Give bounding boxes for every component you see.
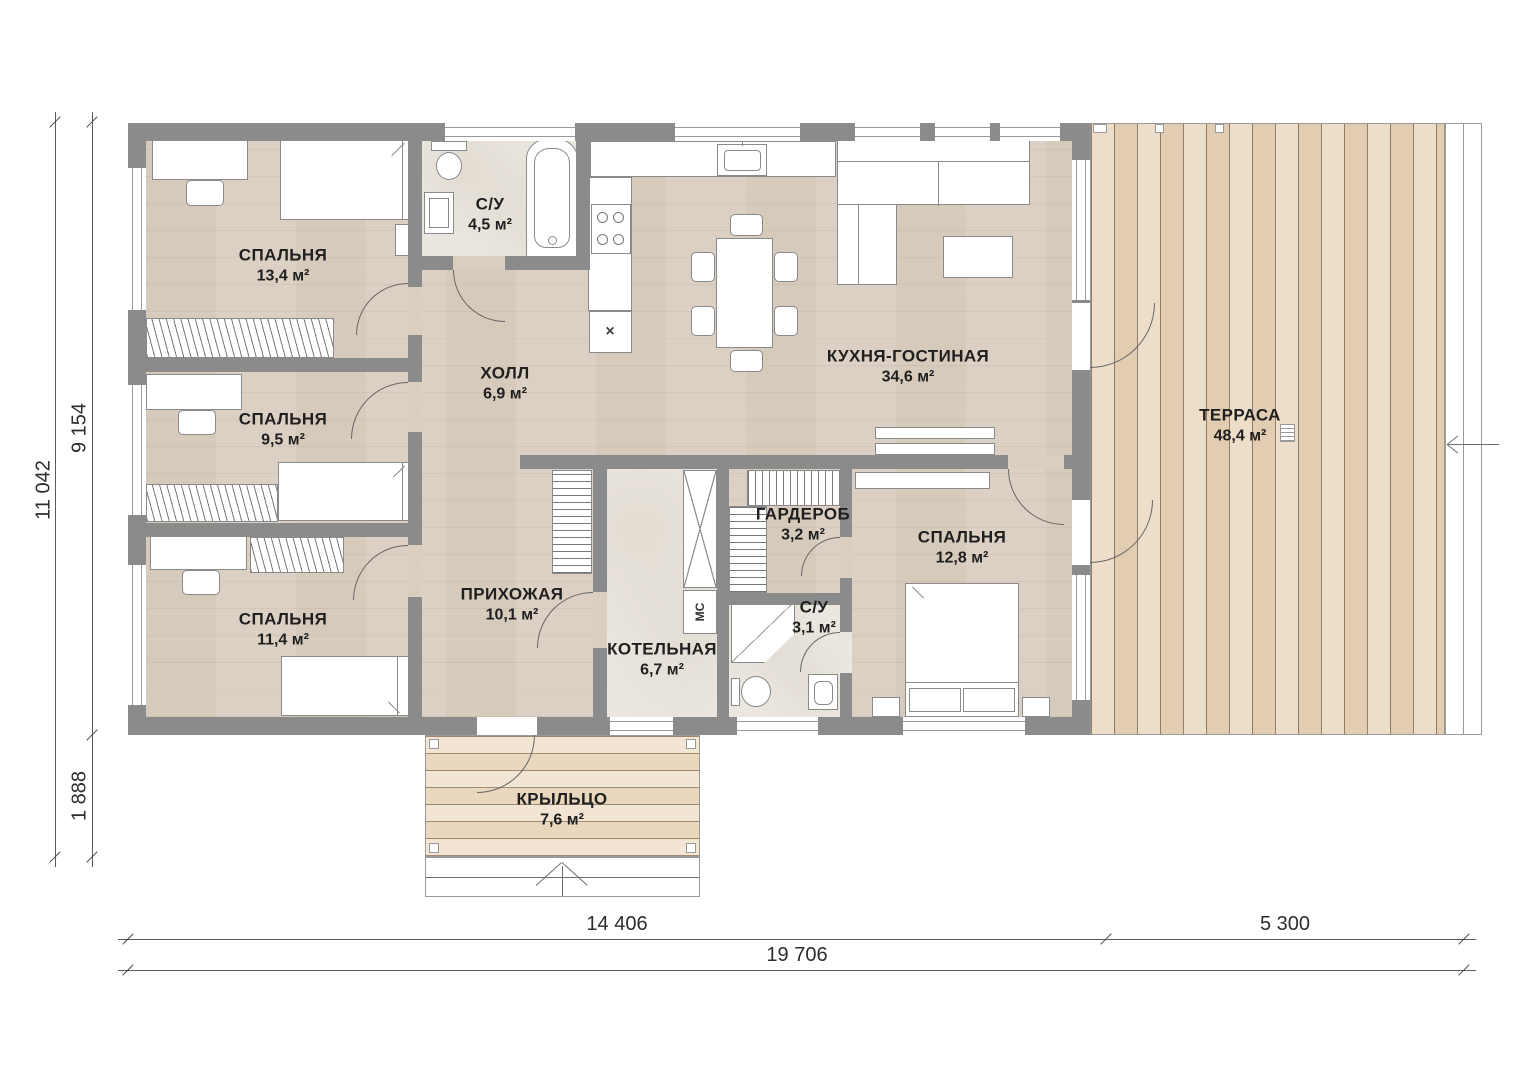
room-name: ПРИХОЖАЯ — [461, 584, 564, 606]
stove-burner — [597, 212, 608, 223]
toilet-bowl — [741, 676, 771, 707]
terrace-entry-arrow-line — [1447, 444, 1499, 445]
room-label-kitchen-living: КУХНЯ-ГОСТИНАЯ 34,6 м² — [827, 346, 989, 389]
tv-stand — [875, 427, 995, 439]
room-label-entry: ПРИХОЖАЯ 10,1 м² — [461, 584, 564, 627]
door-opening-bedroom4 — [1008, 455, 1064, 469]
room-label-bedroom2: СПАЛЬНЯ 9,5 м² — [239, 409, 327, 452]
room-name: ГАРДЕРОБ — [756, 504, 850, 526]
wall-bathroom1-right — [576, 141, 590, 270]
washbasin-inner — [814, 681, 833, 705]
kitchen-sink-basin — [724, 150, 761, 171]
door-opening-bedroom3 — [408, 545, 422, 597]
wardrobe-cabinet — [250, 537, 344, 573]
tv-stand — [875, 443, 995, 455]
room-name: ХОЛЛ — [480, 363, 529, 385]
dining-chair — [730, 350, 763, 372]
appliance-mark: × — [605, 323, 614, 341]
floor-plan: × МС — [0, 0, 1527, 1080]
wall-boiler-wardrobe — [717, 469, 729, 717]
stove-burner — [613, 234, 624, 245]
coffee-table — [943, 236, 1013, 278]
porch-post — [686, 843, 696, 853]
dimension-label-bottom-house: 14 406 — [586, 913, 647, 936]
washbasin — [424, 192, 454, 234]
bathtub-drain — [548, 236, 557, 245]
desk — [150, 532, 247, 570]
bathtub — [526, 139, 578, 265]
wardrobe-cabinet — [146, 318, 334, 358]
porch-arrow-stem — [562, 866, 563, 896]
room-label-terrace: ТЕРРАСА 48,4 м² — [1199, 405, 1281, 448]
room-name: СПАЛЬНЯ — [239, 609, 327, 631]
door-opening-bathroom1 — [453, 256, 505, 270]
dresser — [855, 472, 990, 489]
room-area: 48,4 м² — [1199, 427, 1281, 448]
toilet-bowl — [436, 152, 462, 180]
room-label-bedroom3: СПАЛЬНЯ 11,4 м² — [239, 609, 327, 652]
dining-chair — [691, 252, 715, 282]
bed-fold-line — [388, 701, 400, 713]
boiler-cabinet — [683, 470, 717, 588]
dining-chair — [691, 306, 715, 336]
room-name: СПАЛЬНЯ — [239, 409, 327, 431]
terrace-step-outer — [1445, 123, 1464, 735]
room-label-wardrobe: ГАРДЕРОБ 3,2 м² — [756, 504, 850, 547]
door-opening-bathroom2 — [840, 632, 852, 673]
stove-burner — [613, 212, 624, 223]
window — [128, 565, 146, 705]
sofa-back-line — [858, 205, 859, 284]
wardrobe-rack — [747, 470, 840, 506]
room-area: 3,1 м² — [792, 619, 836, 640]
bed-blanket-line — [906, 682, 1018, 683]
room-area: 11,4 м² — [239, 631, 327, 652]
entry-closet — [552, 470, 592, 574]
room-name: СПАЛЬНЯ — [239, 245, 327, 267]
door-opening-bedroom1 — [408, 287, 422, 335]
kitchen-sink — [717, 144, 767, 176]
wardrobe-cabinet — [146, 484, 278, 522]
terrace-fixing-mark — [1155, 124, 1164, 133]
chair — [186, 180, 224, 206]
room-area: 6,9 м² — [480, 385, 529, 406]
room-area: 3,2 м² — [756, 526, 850, 547]
stove — [591, 204, 631, 254]
dimension-label-left-main: 9 154 — [69, 403, 92, 453]
dimension-label-left-porch: 1 888 — [69, 771, 92, 821]
toilet-tank — [731, 678, 740, 706]
toilet-tank — [431, 141, 467, 151]
stove-burner — [597, 234, 608, 245]
window — [855, 123, 920, 141]
room-area: 7,6 м² — [517, 811, 608, 832]
door-opening-bedroom2 — [408, 382, 422, 432]
door-opening-entry — [477, 717, 537, 735]
chair — [178, 410, 216, 435]
wall-between-bedroom1-bedroom2 — [146, 358, 408, 372]
sofa-chaise-section — [837, 204, 897, 285]
window — [737, 717, 818, 735]
room-name: С/У — [792, 597, 836, 619]
bed-headboard-line — [397, 657, 398, 715]
window — [128, 168, 146, 310]
wall-between-bedroom2-bedroom3 — [146, 523, 408, 537]
dimension-line-bottom-segments — [118, 939, 1476, 940]
window — [675, 123, 800, 141]
sofa-cushion-line — [938, 161, 939, 206]
room-label-hall: ХОЛЛ 6,9 м² — [480, 363, 529, 406]
window — [1000, 123, 1060, 141]
dimension-label-bottom-terrace: 5 300 — [1260, 913, 1310, 936]
porch-post — [686, 739, 696, 749]
dimension-label-left-total: 11 042 — [33, 460, 56, 520]
wall-central-horizontal — [520, 455, 1072, 469]
bed — [278, 462, 418, 521]
bed-headboard-line — [402, 463, 403, 520]
room-name: КРЫЛЬЦО — [517, 789, 608, 811]
door-opening-terrace-living — [1072, 303, 1090, 370]
window — [903, 717, 1025, 735]
bed-fold-line — [912, 586, 924, 598]
desk — [152, 140, 248, 180]
bathtub-basin — [534, 148, 570, 248]
window — [610, 717, 673, 735]
kitchen-counter — [590, 141, 836, 177]
room-name: КУХНЯ-ГОСТИНАЯ — [827, 346, 989, 368]
window — [1072, 160, 1090, 300]
window — [445, 123, 575, 141]
sofa-top-section — [837, 140, 1030, 205]
terrace-step-inner — [1463, 123, 1482, 735]
room-label-porch: КРЫЛЬЦО 7,6 м² — [517, 789, 608, 832]
window — [935, 123, 990, 141]
room-name: СПАЛЬНЯ — [918, 527, 1006, 549]
room-label-bathroom2: С/У 3,1 м² — [792, 597, 836, 640]
door-opening-boiler — [593, 592, 607, 648]
pillow — [963, 688, 1015, 712]
dimension-line-left-segments — [92, 112, 93, 867]
room-name: КОТЕЛЬНАЯ — [607, 639, 717, 661]
room-area: 6,7 м² — [607, 661, 717, 682]
terrace-fixing-mark — [1215, 124, 1224, 133]
door-opening-terrace-bedroom — [1072, 500, 1090, 565]
room-label-bedroom4: СПАЛЬНЯ 12,8 м² — [918, 527, 1006, 570]
dimension-label-bottom-total: 19 706 — [766, 944, 827, 967]
room-name: С/У — [468, 194, 512, 216]
dining-chair — [730, 214, 763, 236]
window — [128, 385, 146, 515]
dining-chair — [774, 252, 798, 282]
sofa-back-line — [838, 161, 1029, 162]
room-area: 10,1 м² — [461, 606, 564, 627]
room-area: 4,5 м² — [468, 216, 512, 237]
nightstand — [872, 697, 900, 717]
terrace-fixing-mark — [1093, 124, 1107, 133]
room-name: ТЕРРАСА — [1199, 405, 1281, 427]
porch-post — [429, 843, 439, 853]
room-area: 34,6 м² — [827, 368, 989, 389]
room-area: 12,8 м² — [918, 549, 1006, 570]
room-label-bedroom1: СПАЛЬНЯ 13,4 м² — [239, 245, 327, 288]
terrace-drain-mark — [1280, 424, 1295, 442]
pillow — [909, 688, 961, 712]
dining-table — [716, 238, 773, 348]
bed — [281, 656, 413, 716]
dimension-line-bottom-total — [118, 970, 1476, 971]
nightstand — [1022, 697, 1050, 717]
bed-headboard-line — [402, 141, 403, 219]
room-area: 13,4 м² — [239, 267, 327, 288]
chair — [182, 570, 220, 595]
dining-chair — [774, 306, 798, 336]
room-area: 9,5 м² — [239, 431, 327, 452]
bed — [280, 140, 418, 220]
washing-machine-label: МС — [693, 603, 707, 622]
porch-post — [429, 739, 439, 749]
washbasin-inner — [429, 198, 449, 228]
room-label-bathroom1: С/У 4,5 м² — [468, 194, 512, 237]
washbasin — [808, 674, 838, 710]
desk — [146, 374, 242, 410]
window — [1072, 575, 1090, 700]
bed-fold-line — [393, 465, 405, 477]
room-label-boiler: КОТЕЛЬНАЯ 6,7 м² — [607, 639, 717, 682]
